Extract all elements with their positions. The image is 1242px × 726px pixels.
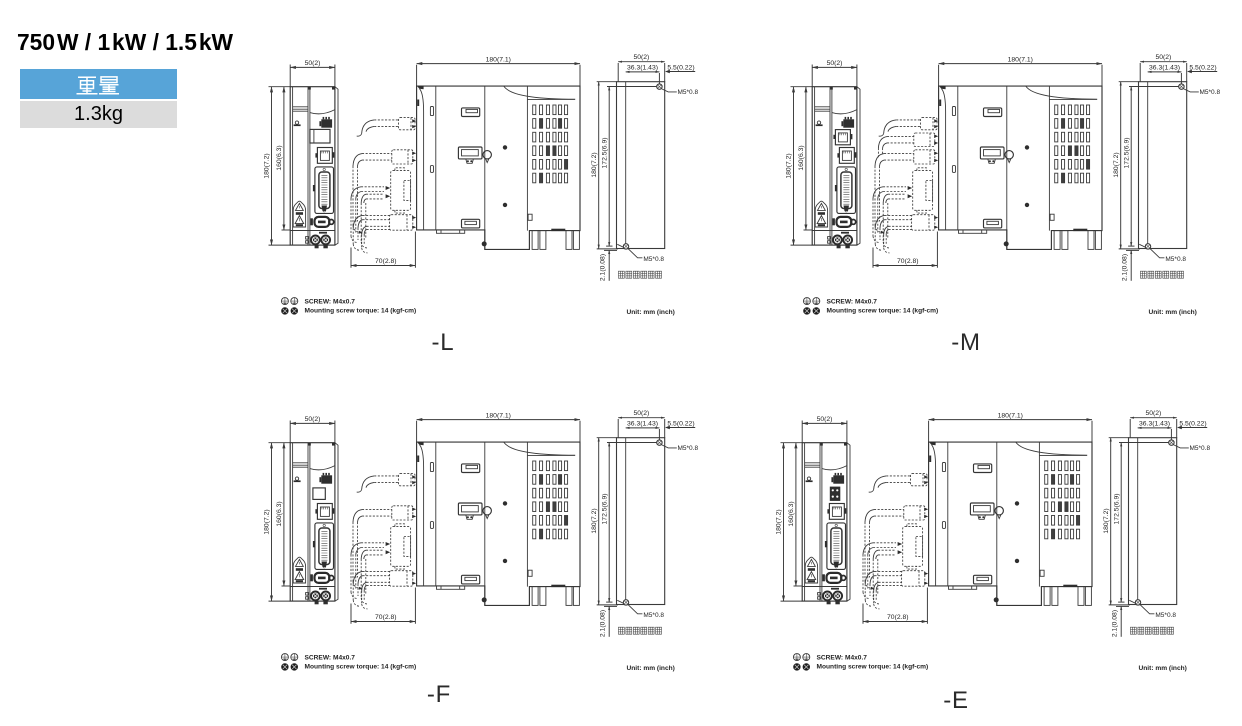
svg-text:-L: -L [432, 329, 455, 356]
svg-text:-M: -M [951, 329, 981, 356]
svg-text:-E: -E [943, 687, 969, 714]
svg-text:-F: -F [427, 681, 451, 708]
